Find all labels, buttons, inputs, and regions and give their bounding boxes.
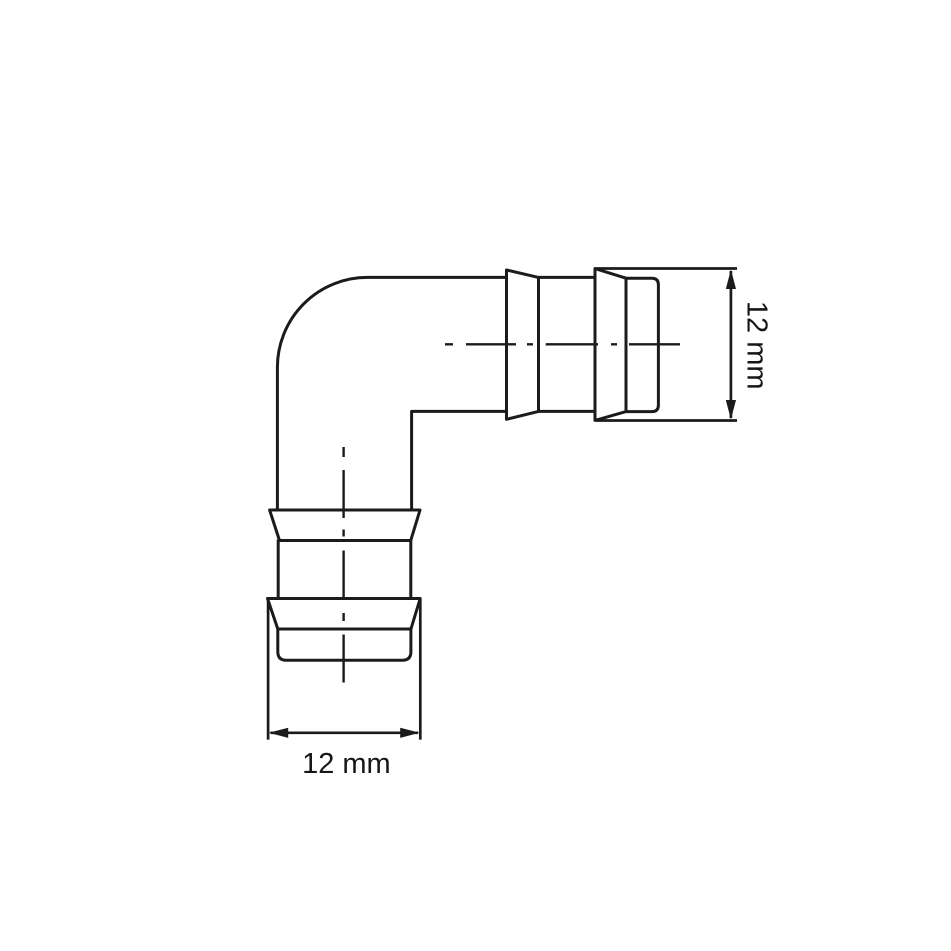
svg-text:12 mm: 12 mm (741, 301, 773, 390)
svg-text:12 mm: 12 mm (302, 748, 391, 780)
